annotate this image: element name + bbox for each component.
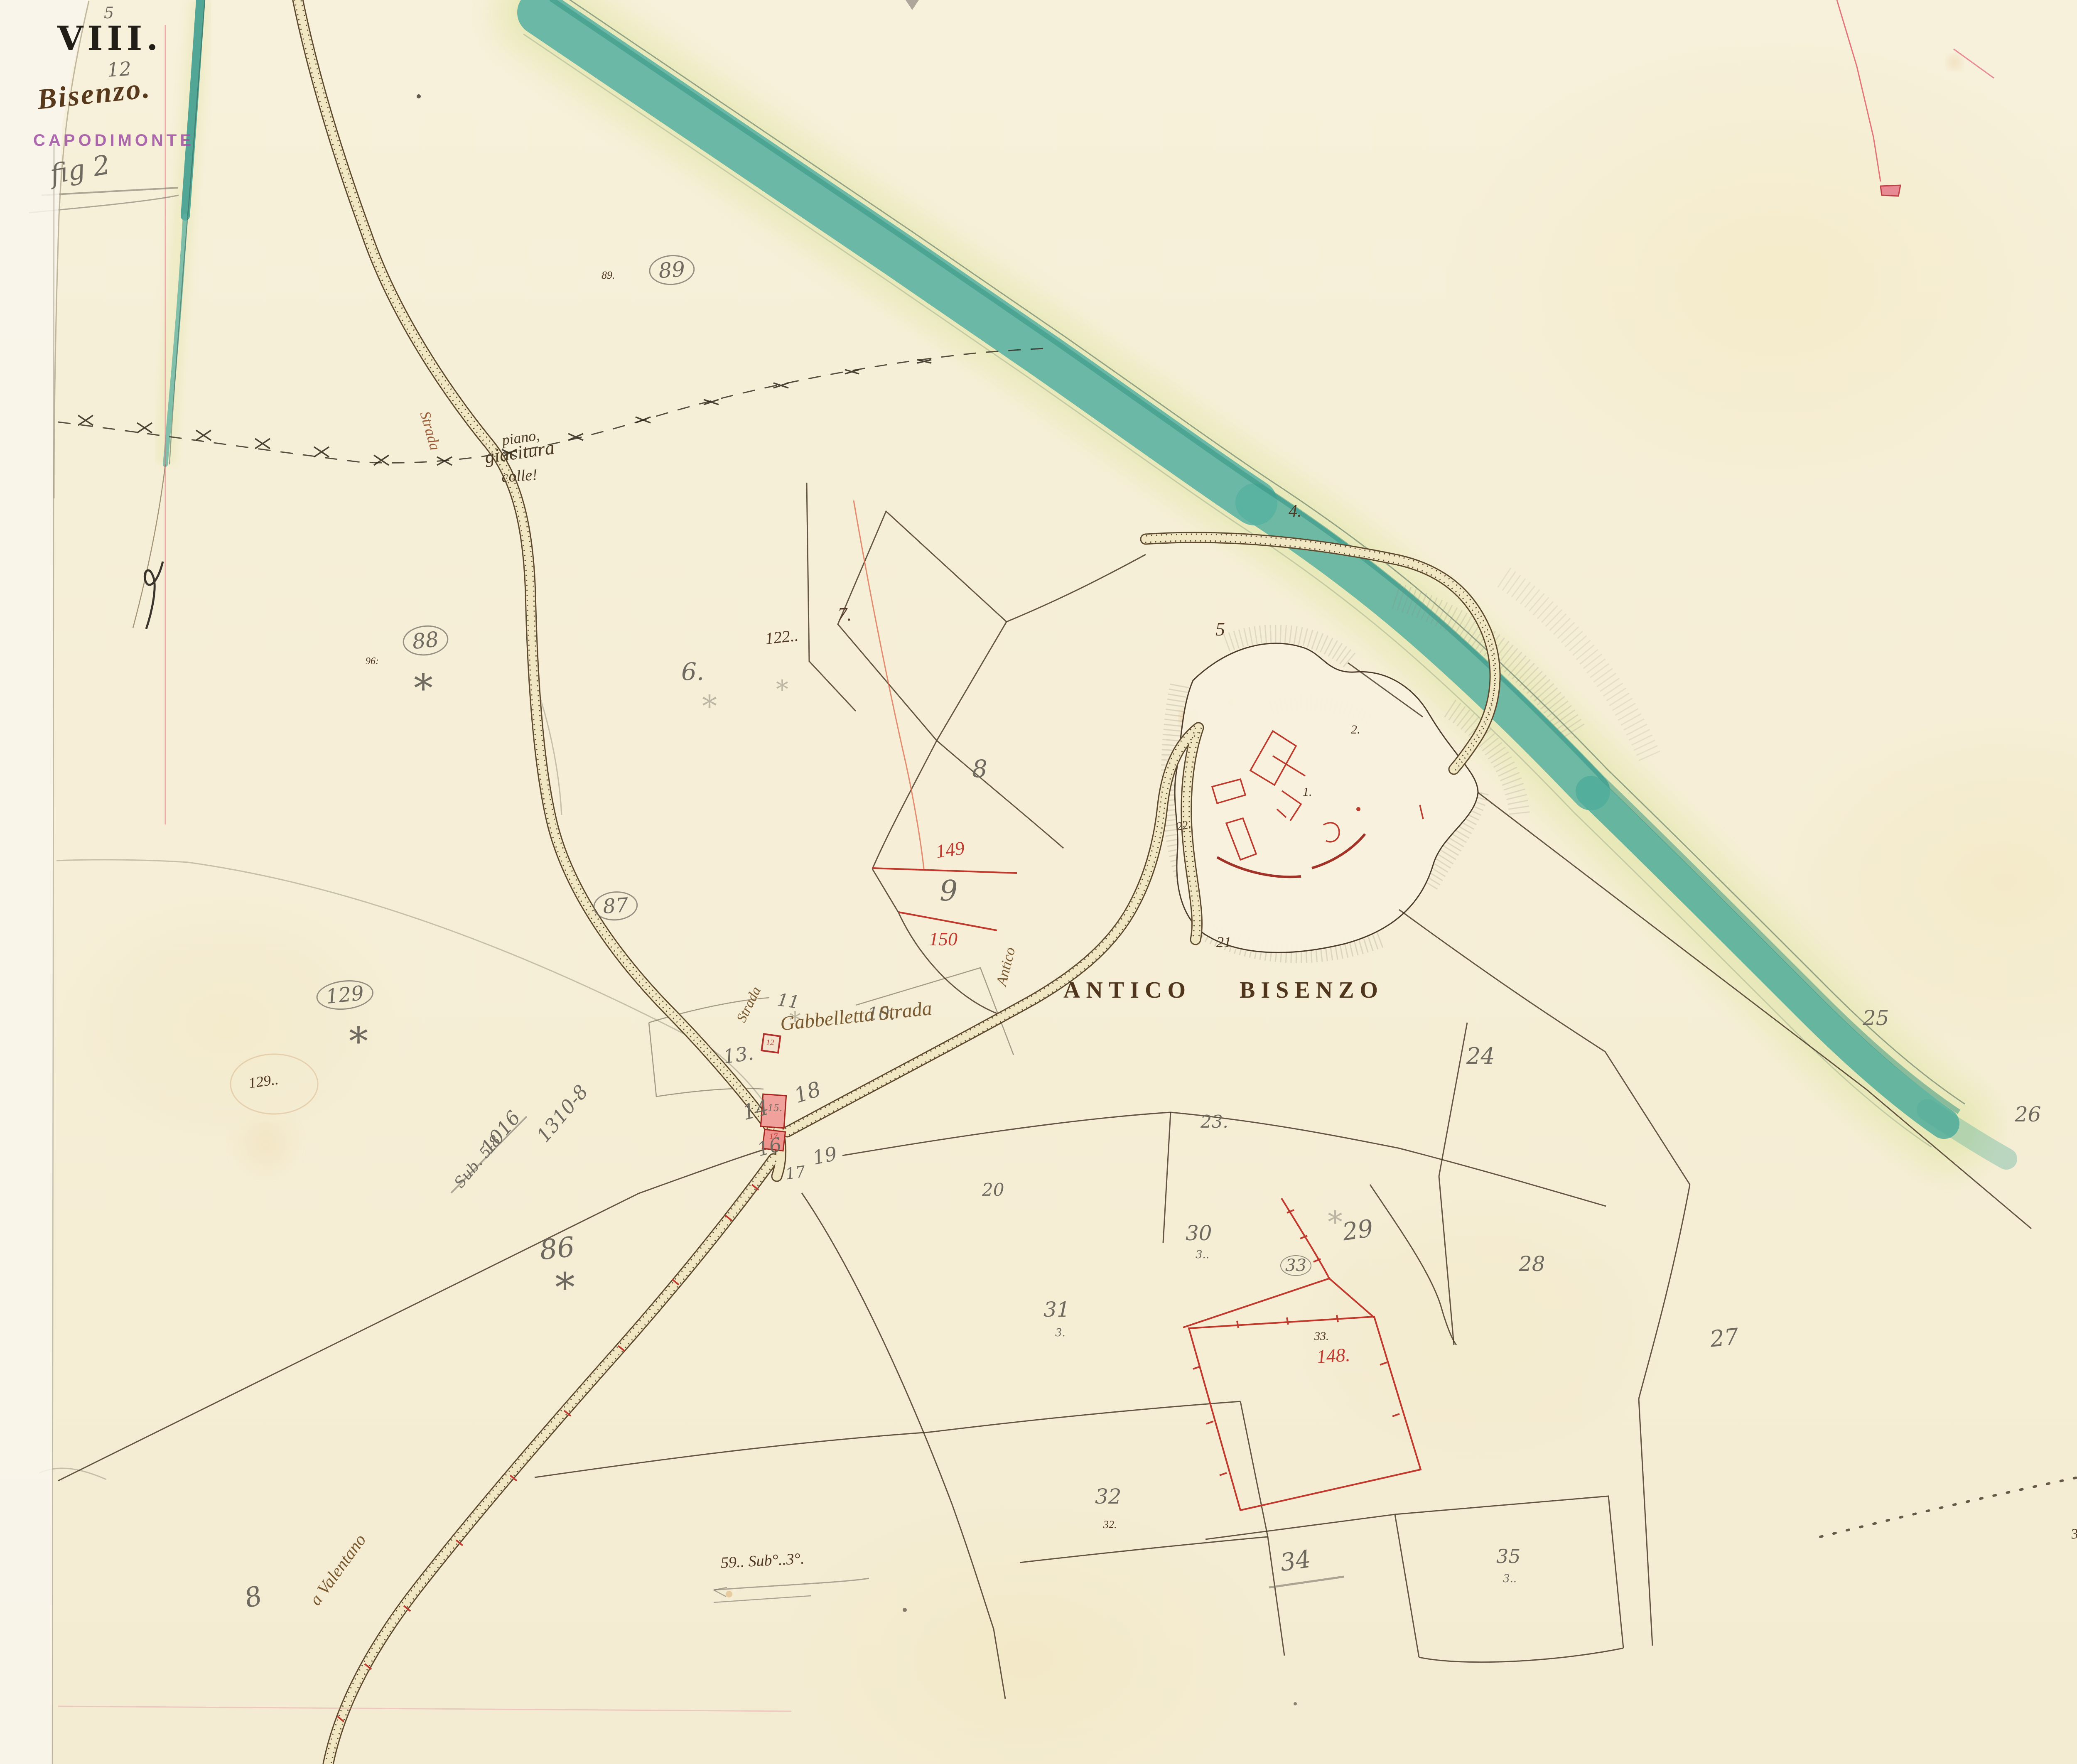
figure-note: fig 2 xyxy=(48,152,112,188)
parcel-13: 13. xyxy=(722,1043,755,1067)
parcel-6: 6. xyxy=(681,660,704,684)
asterisk-8-icon: * xyxy=(776,677,788,702)
parcel-33: 33 xyxy=(1280,1255,1311,1276)
parcel-18: 18 xyxy=(792,1078,823,1106)
map-sheet: 5 VIII. 12 Bisenzo. CAPODIMONTE fig 2 89… xyxy=(0,0,2077,1764)
parcel-150: 150 xyxy=(929,930,957,949)
building-17: 17 xyxy=(769,1132,778,1141)
parcel-86: 86 xyxy=(538,1233,576,1264)
parcel-35: 35 xyxy=(1496,1547,1521,1566)
parcel-1: 1. xyxy=(1303,786,1312,798)
parcel-30: 30 xyxy=(1186,1223,1212,1244)
parcel-34: 34 xyxy=(1279,1547,1312,1575)
parcel-31-sub: 3. xyxy=(1055,1327,1066,1338)
parcel-29: 29 xyxy=(1341,1216,1375,1244)
parcel-33-ink: 33. xyxy=(1314,1331,1329,1342)
parcel-17: 17 xyxy=(784,1163,806,1182)
parcel-122: 122.. xyxy=(764,627,799,647)
note-38-sub2: 38..Sub°..2°.. xyxy=(2070,1519,2077,1542)
capodimonte-stamp: CAPODIMONTE xyxy=(33,132,194,149)
parcel-2: 2. xyxy=(1351,724,1360,736)
parcel-4: 4. xyxy=(1289,503,1302,520)
parcel-35-sub: 3.. xyxy=(1503,1573,1517,1584)
parcel-96-ink: 96: xyxy=(366,656,379,666)
parcel-21: 21 xyxy=(1216,935,1231,949)
asterisk-129-icon: * xyxy=(349,1023,368,1061)
road-label-antico: Antico xyxy=(994,946,1018,987)
asterisk-86-icon: * xyxy=(555,1268,575,1308)
flourish-8: 8 xyxy=(242,1582,265,1612)
parcel-31: 31 xyxy=(1043,1299,1070,1320)
parcel-88: 88 xyxy=(401,623,450,658)
note-giacitura: giacitura xyxy=(484,438,555,467)
parcel-23: 23. xyxy=(1201,1113,1228,1131)
parcel-32-sub: 32. xyxy=(1103,1519,1117,1530)
sheet-number: VIII. xyxy=(57,22,162,55)
parcel-149: 149 xyxy=(935,838,966,861)
parcel-87: 87 xyxy=(592,890,639,922)
parcel-148: 148. xyxy=(1316,1345,1351,1367)
note-1310-8: 1310-8 xyxy=(533,1082,591,1146)
parcel-8: 8 xyxy=(972,757,987,781)
road-label-strada-village: Strada xyxy=(734,984,764,1024)
parcel-5: 5 xyxy=(1215,620,1225,639)
parcel-20: 20 xyxy=(982,1181,1004,1199)
parcel-129: 129 xyxy=(315,978,375,1013)
parcel-9: 9 xyxy=(940,877,957,905)
building-15: 15. xyxy=(768,1104,782,1113)
building-12: 12 xyxy=(766,1038,774,1047)
parcel-30-sub: 3.. xyxy=(1196,1249,1209,1260)
road-label-valentano: a Valentano xyxy=(307,1531,369,1609)
parcel-32: 32 xyxy=(1095,1486,1122,1507)
parcel-25: 25 xyxy=(1863,1008,1889,1028)
parcel-27: 27 xyxy=(1709,1325,1740,1351)
road-label-strada-north: Strada xyxy=(417,410,443,452)
asterisk-29-icon: * xyxy=(1328,1207,1343,1237)
annotation-layer: 5 VIII. 12 Bisenzo. CAPODIMONTE fig 2 89… xyxy=(0,0,2077,1764)
parcel-24: 24 xyxy=(1466,1045,1495,1067)
note-59-sub: 59.. Sub°..3°. xyxy=(720,1551,805,1570)
parcel-89-ink: 89. xyxy=(601,270,615,281)
parcel-28: 28 xyxy=(1519,1254,1545,1274)
parcel-7: 7. xyxy=(837,605,852,624)
note-colle: colle! xyxy=(501,467,538,485)
place-name-script: Bisenzo. xyxy=(36,74,152,114)
parcel-26: 26 xyxy=(2015,1104,2041,1125)
parcel-14: 14 xyxy=(740,1097,771,1124)
parcel-19: 19 xyxy=(811,1144,839,1168)
parcel-89: 89 xyxy=(648,253,695,286)
map-title: ANTICO BISENZO xyxy=(1063,979,1384,1002)
asterisk-88-icon: * xyxy=(414,670,433,708)
parcel-22: 22. xyxy=(1176,819,1192,833)
parcel-129-ink: 129.. xyxy=(248,1072,279,1091)
asterisk-122-icon: * xyxy=(702,691,717,721)
road-label-gabbelletta: Gabbelletta Strada xyxy=(779,999,933,1034)
